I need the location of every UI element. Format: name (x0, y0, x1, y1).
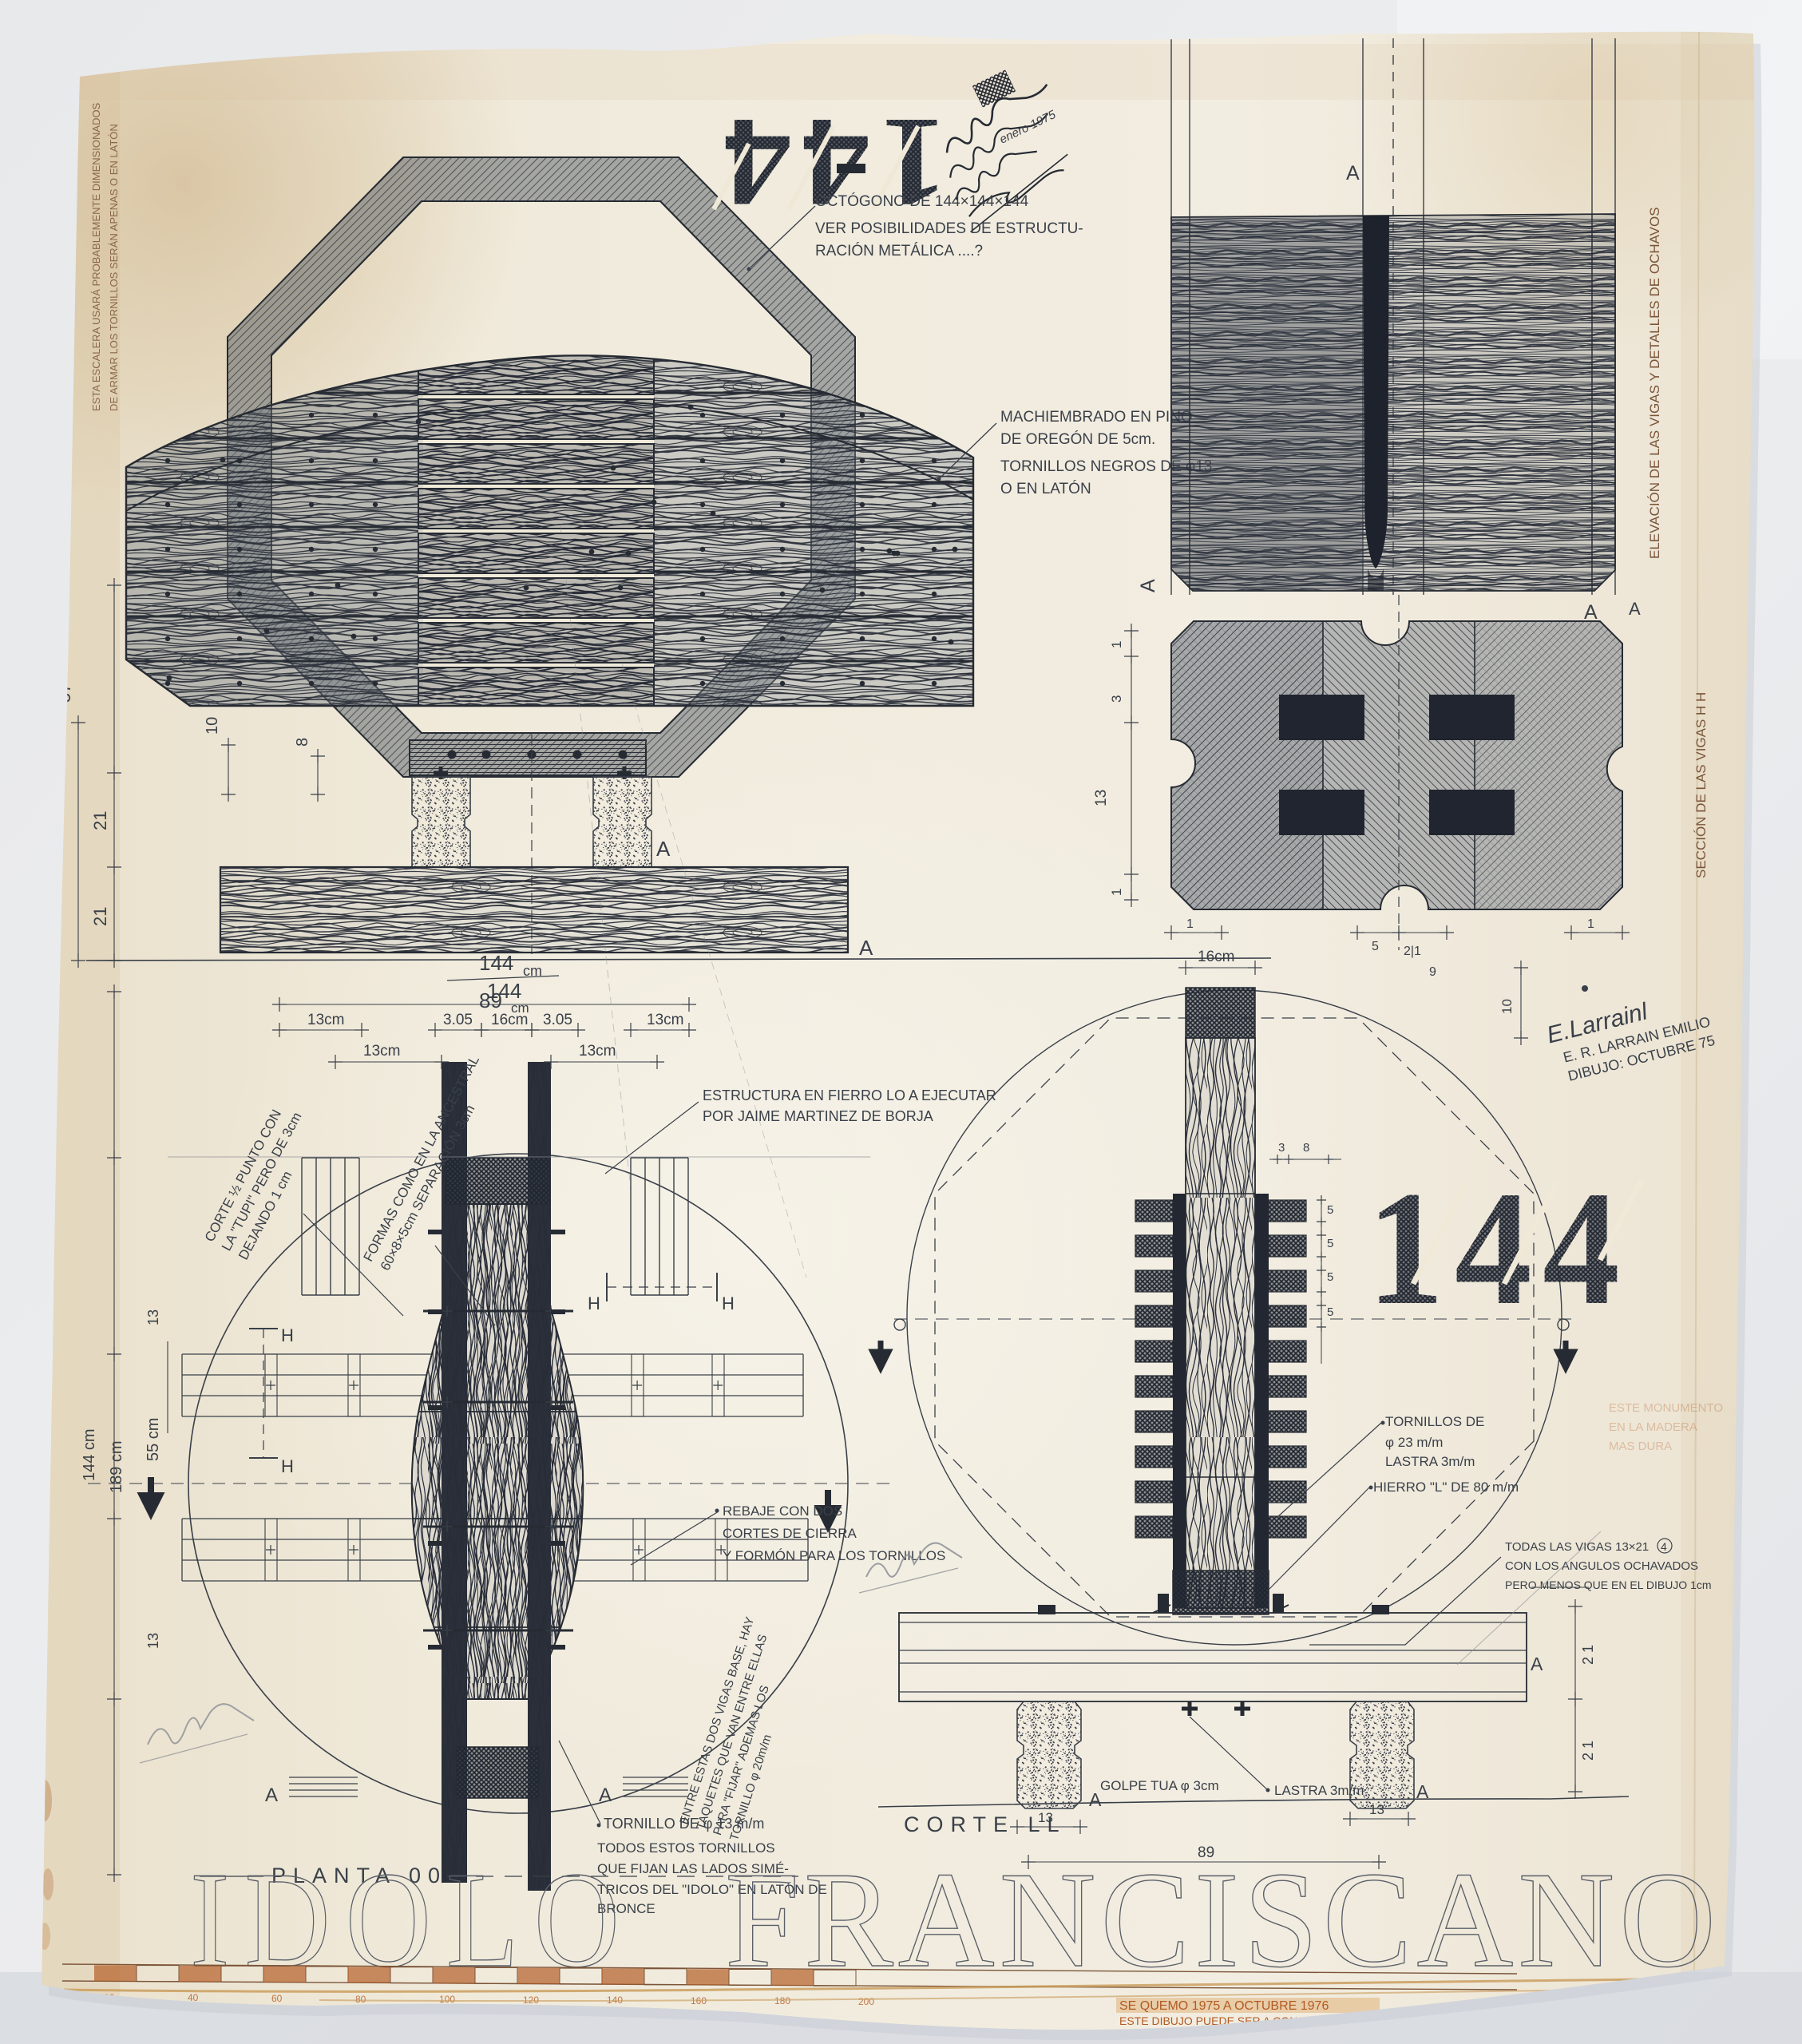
svg-text:A: A (1137, 579, 1159, 592)
svg-text:3.05: 3.05 (443, 1012, 473, 1028)
svg-text:A: A (1629, 599, 1641, 619)
svg-text:DE OREGÓN DE 5cm.: DE OREGÓN DE 5cm. (1000, 430, 1155, 448)
svg-text:ESTRUCTURA EN FIERRO LO A EJEC: ESTRUCTURA EN FIERRO LO A EJECUTAR (703, 1087, 996, 1103)
svg-text:13: 13 (145, 1309, 161, 1325)
svg-text:200: 200 (858, 1996, 874, 2007)
svg-text:CORTES DE CIERRA: CORTES DE CIERRA (723, 1526, 857, 1541)
svg-text:A: A (1346, 162, 1360, 184)
svg-text:4: 4 (1661, 1540, 1667, 1553)
svg-text:LASTRA 3m/m: LASTRA 3m/m (1274, 1783, 1364, 1798)
svg-text:55 cm: 55 cm (145, 1418, 162, 1461)
svg-text:REBAJE CON DOS: REBAJE CON DOS (723, 1503, 842, 1519)
svg-text:5: 5 (1372, 940, 1379, 953)
svg-text:IDOLO: IDOLO (190, 1844, 635, 1996)
svg-text:A: A (1584, 601, 1598, 624)
svg-text:MAS DURA: MAS DURA (1609, 1440, 1672, 1453)
svg-text:5: 5 (1327, 1203, 1333, 1217)
svg-text:180: 180 (774, 1995, 790, 2006)
svg-text:144 cm: 144 cm (81, 1428, 98, 1481)
svg-text:POR JAIME MARTINEZ DE BORJA: POR JAIME MARTINEZ DE BORJA (703, 1108, 933, 1124)
svg-text:EN LA MADERA: EN LA MADERA (1609, 1420, 1697, 1434)
svg-text:144: 144 (713, 92, 948, 234)
svg-text:13cm: 13cm (307, 1012, 344, 1028)
svg-text:H: H (722, 1293, 735, 1313)
svg-text:16cm: 16cm (1198, 949, 1234, 965)
svg-text:3: 3 (1278, 1141, 1285, 1155)
svg-text:FRANCISCANO: FRANCISCANO (725, 1844, 1721, 1996)
svg-text:144: 144 (1367, 1158, 1630, 1339)
svg-text:10: 10 (204, 717, 221, 735)
svg-text:1: 1 (1186, 917, 1194, 931)
svg-text:VER POSIBILIDADES DE ESTRUCTU-: VER POSIBILIDADES DE ESTRUCTU- (815, 220, 1083, 237)
svg-text:189 cm: 189 cm (108, 1440, 125, 1493)
svg-text:8: 8 (1303, 1141, 1309, 1155)
svg-text:H: H (281, 1456, 294, 1476)
svg-text:13: 13 (1369, 1802, 1384, 1817)
svg-text:120: 120 (523, 1994, 539, 2006)
svg-text:13: 13 (145, 1633, 161, 1649)
svg-text:16cm: 16cm (491, 1012, 528, 1028)
svg-text:13cm: 13cm (579, 1043, 616, 1060)
svg-text:OCTÓGONO DE 144×144×144: OCTÓGONO DE 144×144×144 (815, 192, 1029, 210)
svg-text:SE QUEMO 1975 A OCTUBRE 1976: SE QUEMO 1975 A OCTUBRE 1976 (1119, 1999, 1329, 2013)
svg-text:LASTRA 3m/m: LASTRA 3m/m (1385, 1454, 1475, 1469)
svg-text:O EN LATÓN: O EN LATÓN (1000, 480, 1091, 497)
svg-text:ESTE MONUMENTO: ESTE MONUMENTO (1609, 1401, 1723, 1415)
svg-text:A: A (859, 936, 873, 960)
svg-text:DE ARMAR LOS TORNILLOS SERÁN A: DE ARMAR LOS TORNILLOS SERÁN APENAS O EN… (108, 124, 120, 411)
svg-text:2|1: 2|1 (1404, 945, 1421, 958)
svg-text:5: 5 (1327, 1305, 1333, 1319)
svg-text:2 1: 2 1 (1580, 1645, 1596, 1665)
svg-text:13: 13 (1093, 790, 1110, 806)
svg-text:80: 80 (355, 1994, 366, 2005)
svg-text:H: H (588, 1293, 600, 1313)
svg-text:13: 13 (1038, 1810, 1053, 1825)
svg-text:HIERRO "L" DE 80 m/m: HIERRO "L" DE 80 m/m (1373, 1480, 1519, 1495)
svg-text:ESTA ESCALERA USARÁ PROBABLEME: ESTA ESCALERA USARÁ PROBABLEMENTE DIMENS… (90, 102, 102, 411)
svg-text:PERO MENOS QUE EN EL DIBUJO 1c: PERO MENOS QUE EN EL DIBUJO 1cm (1505, 1579, 1712, 1591)
svg-text:A: A (599, 1785, 612, 1806)
svg-text:2 1: 2 1 (1580, 1741, 1596, 1761)
svg-text:8: 8 (294, 738, 311, 747)
svg-text:5: 5 (1327, 1270, 1333, 1284)
svg-text:13cm: 13cm (363, 1043, 400, 1060)
svg-text:100: 100 (439, 1994, 455, 2005)
svg-text:60: 60 (271, 1993, 283, 2004)
svg-text:3: 3 (1109, 695, 1124, 703)
svg-text:89: 89 (479, 988, 502, 1012)
svg-text:CON LOS ANGULOS OCHAVADOS: CON LOS ANGULOS OCHAVADOS (1505, 1559, 1698, 1573)
svg-text:TORNILLOS DE: TORNILLOS DE (1385, 1414, 1484, 1429)
svg-text:144: 144 (479, 951, 513, 975)
svg-text:21: 21 (90, 811, 110, 830)
svg-text:5: 5 (1327, 1237, 1333, 1250)
svg-text:φ 23 m/m: φ 23 m/m (1385, 1435, 1443, 1450)
svg-text:GOLPE TUA φ 3cm: GOLPE TUA φ 3cm (1100, 1778, 1219, 1793)
svg-text:H: H (281, 1325, 294, 1345)
svg-text:3.05: 3.05 (543, 1012, 572, 1028)
svg-text:RACIÓN METÁLICA ....?: RACIÓN METÁLICA ....? (815, 242, 983, 259)
svg-text:ELEVACIÓN DE LAS VIGAS Y DETAL: ELEVACIÓN DE LAS VIGAS Y DETALLES DE OCH… (1647, 207, 1662, 559)
svg-text:TODAS LAS VIGAS 13×21: TODAS LAS VIGAS 13×21 (1505, 1540, 1649, 1554)
svg-text:1: 1 (1109, 641, 1124, 648)
svg-text:MACHIEMBRADO EN PINO: MACHIEMBRADO EN PINO (1000, 409, 1193, 426)
svg-text:21: 21 (90, 907, 110, 926)
svg-text:13cm: 13cm (647, 1012, 683, 1028)
svg-text:A: A (656, 837, 671, 861)
svg-text:10: 10 (1499, 999, 1515, 1014)
svg-text:A: A (1531, 1654, 1543, 1674)
svg-text:1: 1 (1587, 917, 1594, 931)
svg-text:Y FORMÓN PARA LOS TORNILLOS: Y FORMÓN PARA LOS TORNILLOS (723, 1548, 945, 1563)
svg-text:1: 1 (1109, 889, 1124, 896)
svg-text:9: 9 (1429, 965, 1436, 979)
svg-text:A: A (265, 1785, 278, 1806)
svg-text:SECCIÓN DE LAS VIGAS H H: SECCIÓN DE LAS VIGAS H H (1693, 692, 1709, 878)
